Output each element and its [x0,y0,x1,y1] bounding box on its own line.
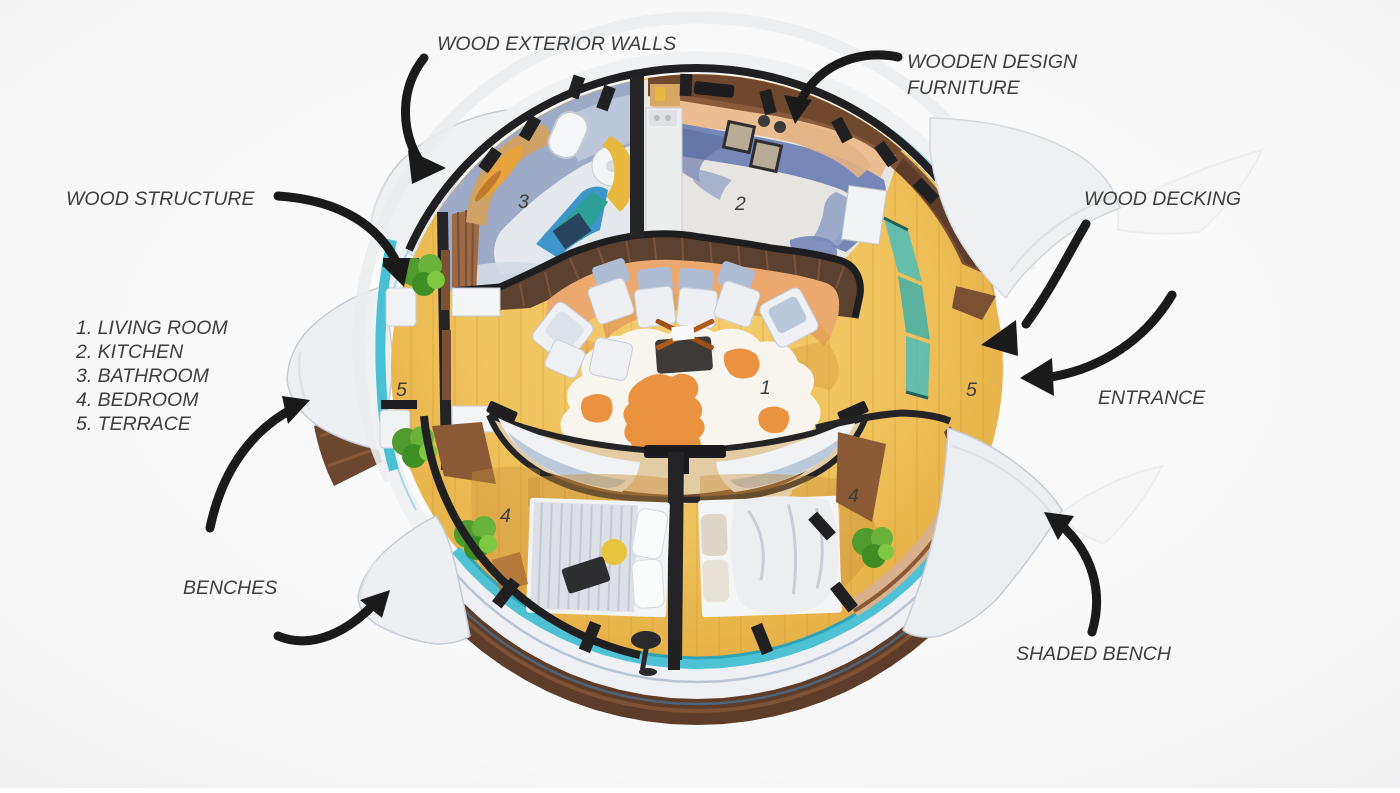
svg-text:FURNITURE: FURNITURE [907,77,1021,99]
svg-text:WOOD EXTERIOR WALLS: WOOD EXTERIOR WALLS [437,33,676,55]
svg-text:2. KITCHEN: 2. KITCHEN [75,341,184,363]
svg-text:5. TERRACE: 5. TERRACE [76,413,192,435]
svg-text:SHADED BENCH: SHADED BENCH [1016,643,1172,665]
svg-text:3: 3 [518,191,529,213]
svg-text:1. LIVING ROOM: 1. LIVING ROOM [76,317,228,339]
svg-text:2: 2 [734,193,746,215]
svg-text:5: 5 [396,379,407,401]
svg-text:5: 5 [966,379,977,401]
svg-text:WOOD STRUCTURE: WOOD STRUCTURE [66,188,255,210]
svg-text:WOOD DECKING: WOOD DECKING [1084,188,1241,210]
svg-text:WOODEN DESIGN: WOODEN DESIGN [907,51,1078,73]
svg-text:BENCHES: BENCHES [183,577,277,599]
svg-text:4. BEDROOM: 4. BEDROOM [76,389,199,411]
svg-text:1: 1 [760,377,771,399]
svg-text:ENTRANCE: ENTRANCE [1098,387,1206,409]
svg-text:4: 4 [500,505,511,527]
svg-text:3. BATHROOM: 3. BATHROOM [76,365,210,387]
svg-text:4: 4 [848,485,859,507]
